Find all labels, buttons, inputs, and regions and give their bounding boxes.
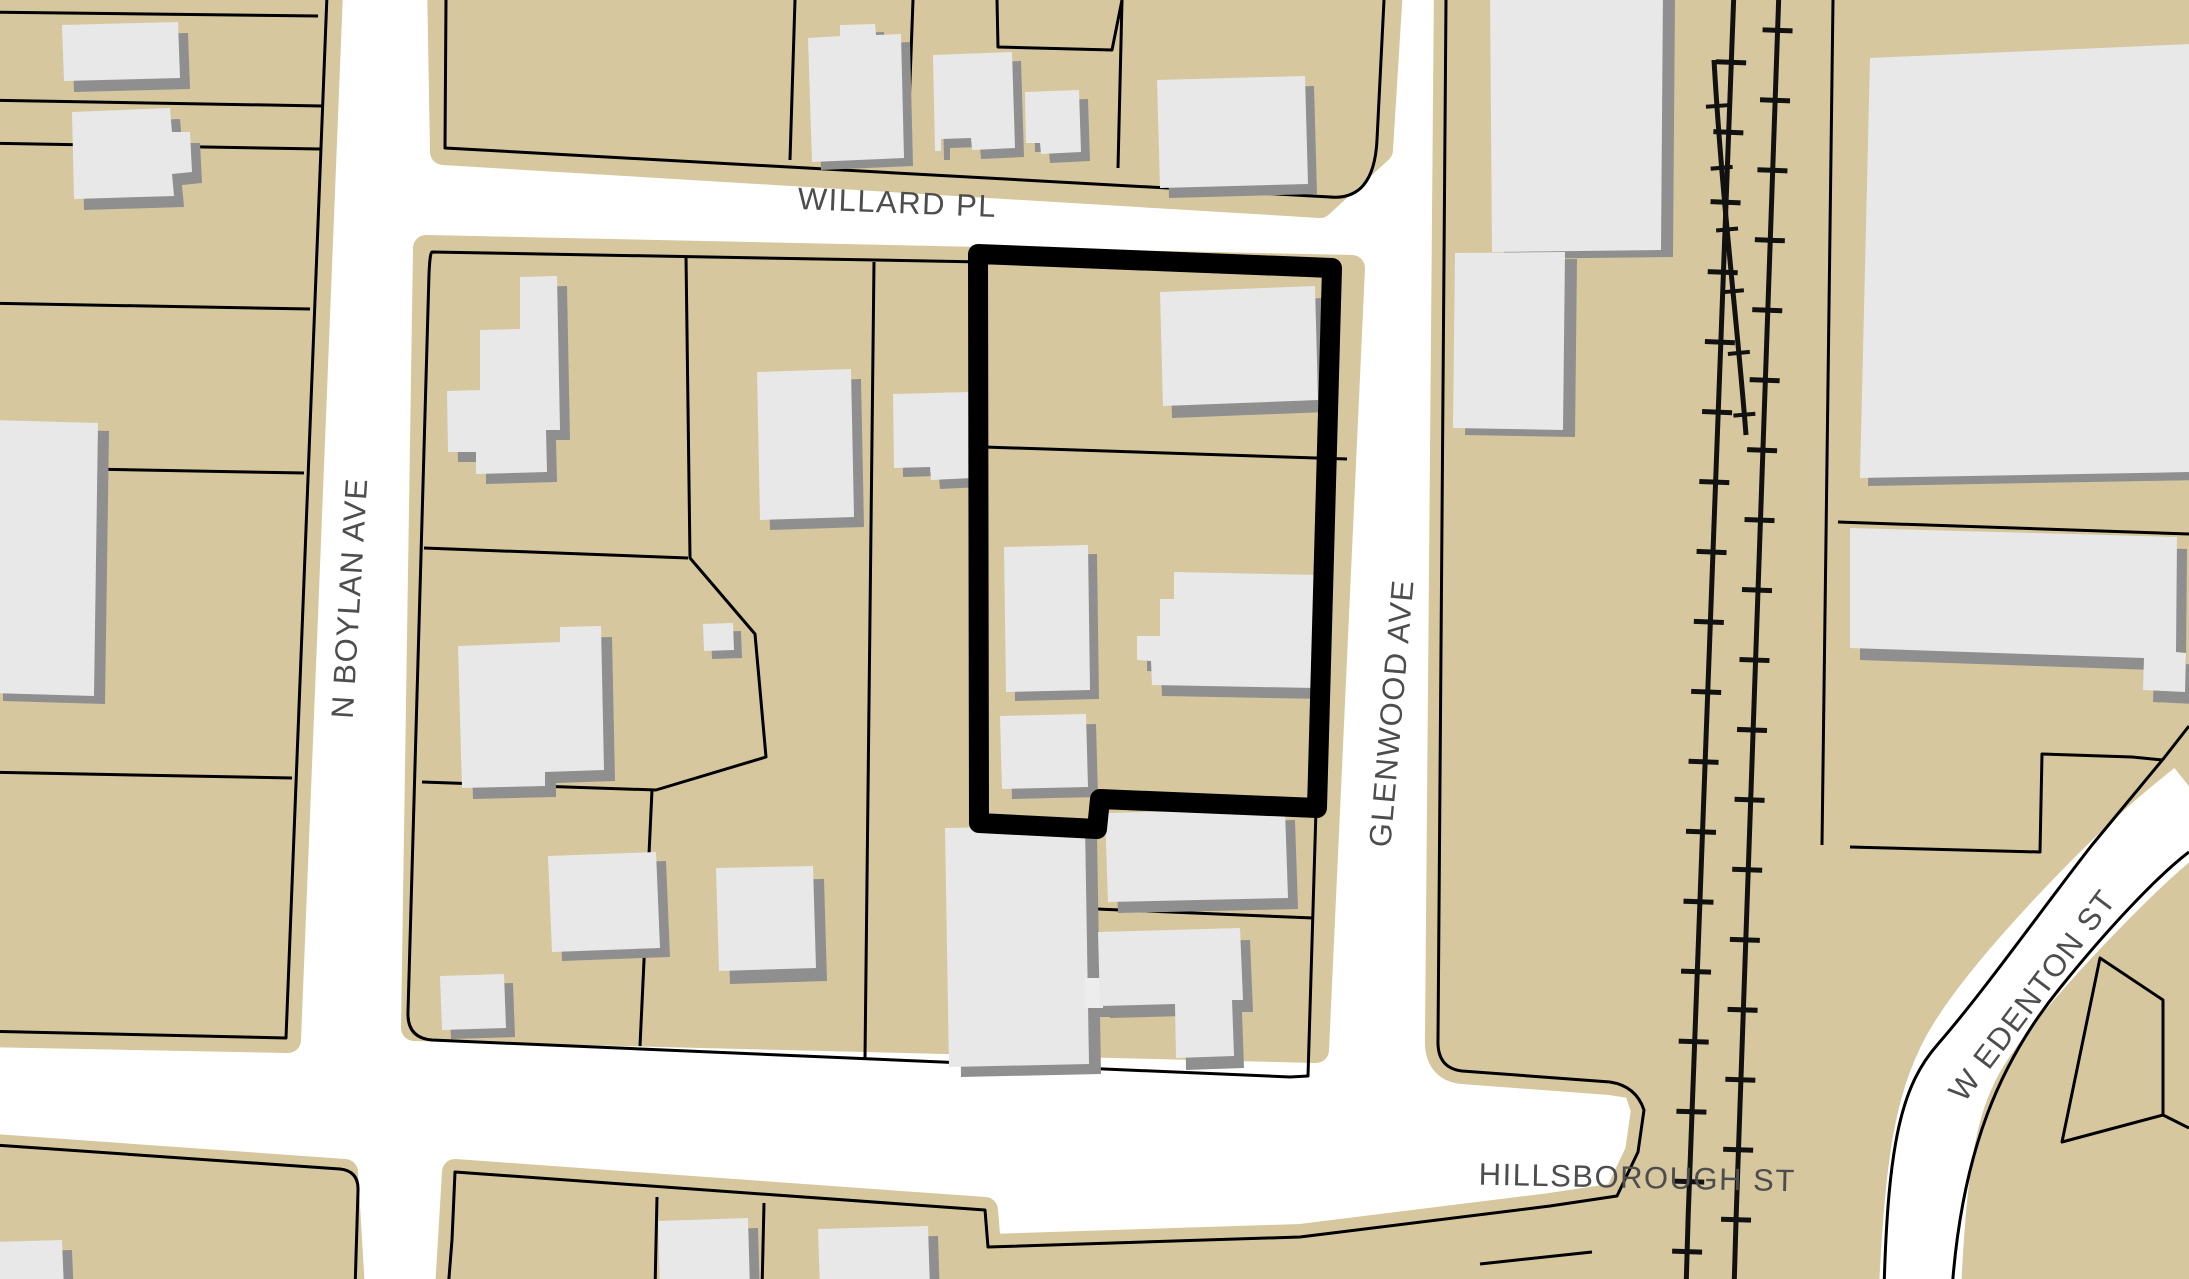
map-canvas[interactable]: WILLARD PL N BOYLAN AVE GLENWOOD AVE HIL… xyxy=(0,0,2189,1279)
road-turnaround-blob xyxy=(1886,1170,1952,1220)
parcel-map[interactable]: WILLARD PL N BOYLAN AVE GLENWOOD AVE HIL… xyxy=(0,0,2189,1279)
street-label-hillsborough-st: HILLSBOROUGH ST xyxy=(1478,1157,1796,1199)
